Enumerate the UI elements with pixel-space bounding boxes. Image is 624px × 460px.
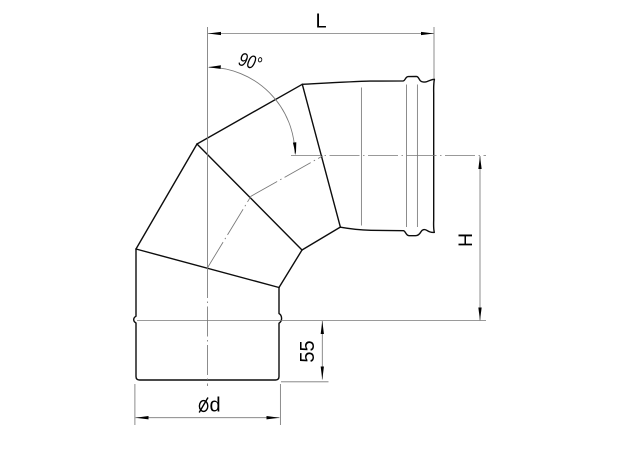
svg-text:L: L: [316, 11, 327, 33]
svg-text:d: d: [210, 395, 221, 417]
svg-text:H: H: [455, 233, 477, 247]
svg-text:55: 55: [297, 340, 319, 362]
